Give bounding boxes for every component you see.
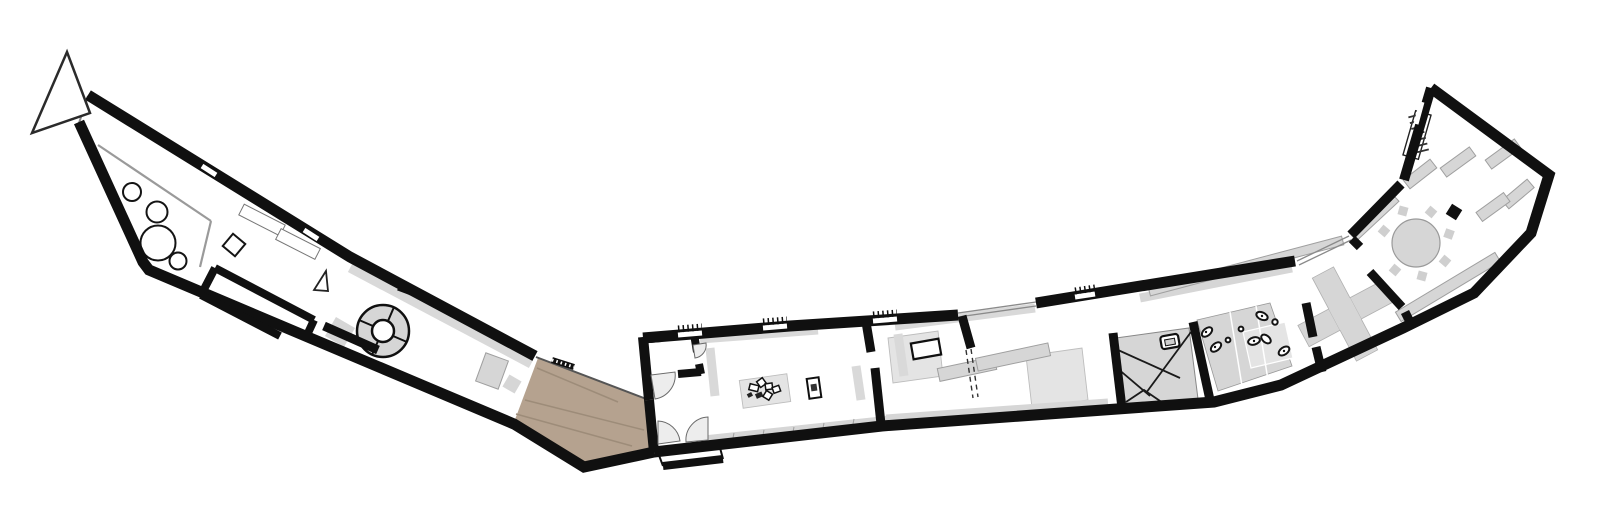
left-wing-furniture bbox=[98, 145, 531, 394]
round-table-with-chairs bbox=[1378, 205, 1455, 281]
floor-plan-canvas bbox=[0, 0, 1600, 516]
lift-machine bbox=[1160, 334, 1180, 350]
pedestal bbox=[911, 339, 941, 360]
door-swings bbox=[651, 343, 708, 444]
entrance-door-right bbox=[686, 417, 708, 442]
interior-stair bbox=[1116, 328, 1198, 409]
north-arrow-icon bbox=[32, 52, 90, 133]
stool bbox=[502, 374, 521, 393]
entrance-ramp bbox=[513, 357, 652, 464]
round-stair-element bbox=[357, 305, 409, 357]
exhibit-mat-with-models bbox=[739, 374, 790, 408]
inner-door bbox=[693, 343, 706, 358]
pedestal bbox=[807, 377, 822, 398]
entrance-door-left bbox=[658, 421, 680, 444]
desk bbox=[476, 353, 509, 389]
column-symbol bbox=[1446, 204, 1463, 221]
door-swing-triangle bbox=[314, 271, 328, 291]
floor-plan-drawing bbox=[0, 0, 1600, 516]
display-slab bbox=[1476, 193, 1510, 222]
display-slab bbox=[1440, 147, 1476, 177]
column-symbol bbox=[223, 234, 246, 257]
wc-block bbox=[1197, 303, 1293, 391]
vestibule-door bbox=[651, 372, 675, 399]
window-openings bbox=[202, 102, 1422, 335]
